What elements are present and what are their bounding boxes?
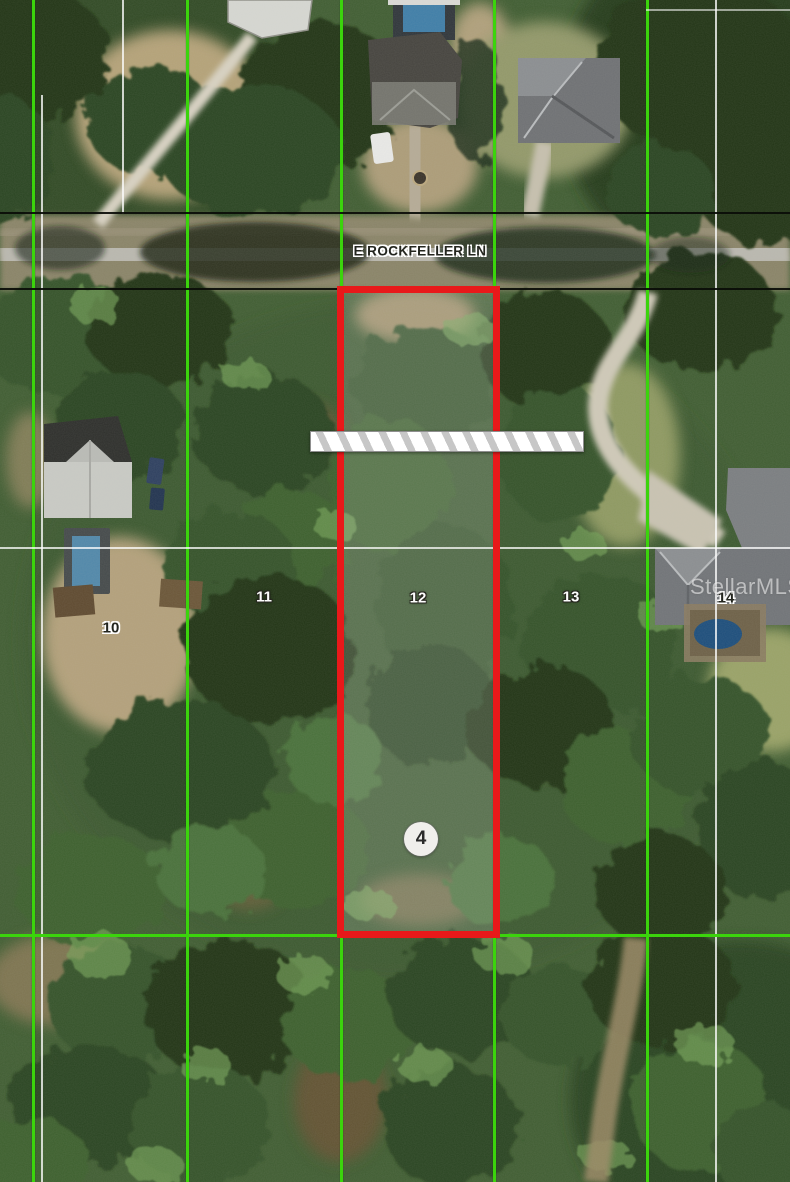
parcel-boundary-line-v5 xyxy=(646,0,649,1182)
section-line-v-topleft xyxy=(122,0,124,214)
lot-marker-badge: 4 xyxy=(404,822,438,856)
parcel-number-label-11: 11 xyxy=(256,589,272,606)
parcel-boundary-line-v2 xyxy=(186,0,189,1182)
section-line-h-topright xyxy=(646,9,790,11)
aerial-parcel-map: E ROCKFELLER LN 10 11 12 13 14 4 Stellar… xyxy=(0,0,790,1182)
mls-watermark: StellarMLS xyxy=(690,574,790,600)
street-name-label: E ROCKFELLER LN xyxy=(354,244,487,259)
parcel-boundary-line-v1 xyxy=(32,0,35,1182)
parcel-number-label-13: 13 xyxy=(563,589,580,606)
section-line-v-left xyxy=(41,95,43,1182)
parcel-number-label-12: 12 xyxy=(410,590,427,607)
easement-hatch-bar xyxy=(310,431,584,452)
road-edge-line-north xyxy=(0,212,790,214)
parcel-number-label-10: 10 xyxy=(103,620,120,637)
